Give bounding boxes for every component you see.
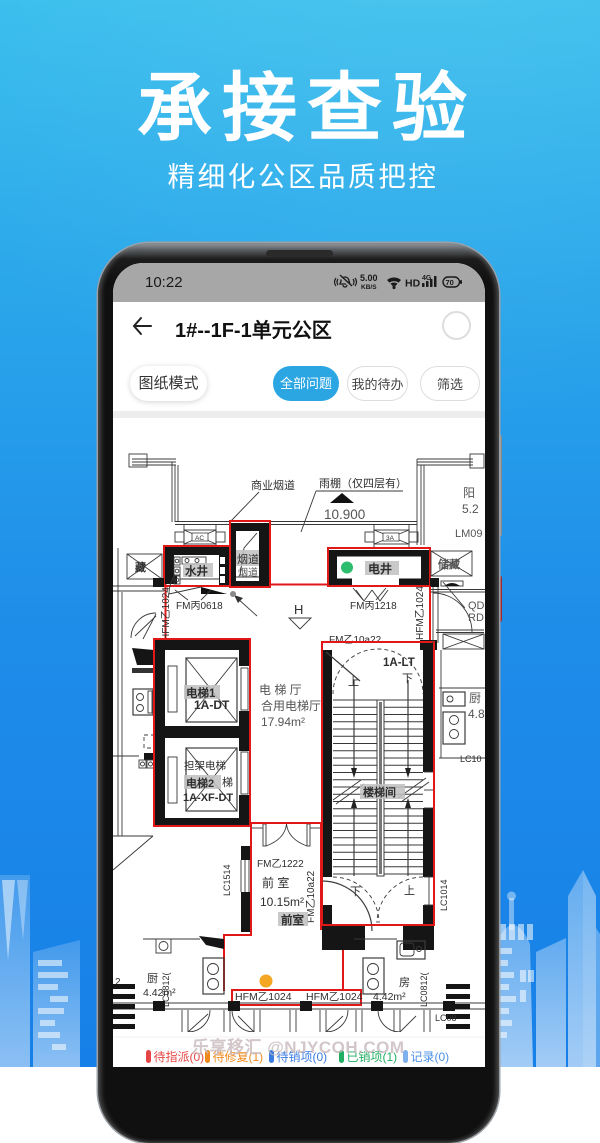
svg-text:70: 70 (446, 278, 454, 287)
svg-text:LC0812(: LC0812( (419, 972, 429, 1007)
svg-text:HFM乙1024: HFM乙1024 (306, 991, 363, 1003)
svg-text:下: 下 (350, 886, 361, 898)
svg-text:KB/S: KB/S (361, 284, 377, 291)
svg-text:前 室: 前 室 (262, 875, 289, 890)
svg-text:FM乙1222: FM乙1222 (257, 858, 304, 870)
svg-text:RD: RD (468, 612, 484, 624)
svg-text:商业烟道: 商业烟道 (251, 478, 295, 492)
svg-text:上: 上 (348, 675, 359, 688)
svg-text:10.15m²: 10.15m² (260, 895, 304, 909)
svg-text:H: H (294, 602, 303, 617)
svg-text:LM09: LM09 (455, 528, 483, 540)
svg-text:藏: 藏 (135, 560, 146, 574)
svg-text:4.42m²: 4.42m² (143, 987, 176, 999)
svg-text:LC1514: LC1514 (222, 864, 232, 896)
svg-text:储藏: 储藏 (438, 557, 460, 571)
svg-text:前室: 前室 (281, 913, 304, 927)
svg-text:LC1014: LC1014 (439, 879, 449, 911)
svg-text:楼梯间: 楼梯间 (363, 785, 396, 799)
svg-text:上: 上 (404, 884, 415, 897)
svg-text:烟道: 烟道 (237, 552, 259, 566)
svg-text:17.94m²: 17.94m² (261, 715, 305, 729)
svg-text:5.2: 5.2 (462, 502, 479, 516)
svg-text:HFM乙1024: HFM乙1024 (160, 587, 172, 641)
svg-text:厨: 厨 (469, 691, 481, 705)
svg-text:QD: QD (468, 600, 485, 612)
svg-text:4.8: 4.8 (468, 707, 485, 721)
svg-text:雨棚（仅四层有）: 雨棚（仅四层有） (319, 476, 407, 490)
svg-text:担架电梯: 担架电梯 (184, 759, 226, 772)
svg-text:LC10: LC10 (460, 754, 482, 764)
svg-text:HD: HD (405, 278, 421, 290)
svg-text:HFM乙1024: HFM乙1024 (414, 586, 426, 640)
svg-text:房: 房 (399, 976, 410, 989)
svg-text:3A: 3A (386, 535, 395, 542)
svg-text:AC: AC (195, 535, 204, 542)
svg-text:1A-XF-DT: 1A-XF-DT (183, 792, 233, 804)
svg-text:厨: 厨 (147, 972, 158, 985)
svg-text:烟道: 烟道 (238, 566, 258, 579)
svg-text:LC08: LC08 (435, 1013, 457, 1023)
svg-text:HFM乙1024: HFM乙1024 (235, 991, 292, 1003)
svg-text:下: 下 (402, 673, 413, 685)
svg-text:1A-DT: 1A-DT (194, 698, 230, 712)
svg-text:电 梯 厅: 电 梯 厅 (259, 683, 302, 697)
svg-text:1A-LT: 1A-LT (383, 657, 415, 669)
svg-text:阳: 阳 (463, 486, 475, 500)
svg-text:水井: 水井 (185, 564, 208, 578)
svg-text:FM丙0618: FM丙0618 (176, 601, 223, 612)
svg-text:电梯2: 电梯2 (186, 776, 214, 790)
svg-text:FM丙1218: FM丙1218 (350, 601, 397, 612)
svg-text:梯: 梯 (222, 776, 233, 789)
svg-text:合用电梯厅: 合用电梯厅 (261, 698, 321, 713)
svg-text:5.00: 5.00 (360, 273, 378, 283)
svg-text:电井: 电井 (368, 561, 392, 576)
svg-text:10.900: 10.900 (324, 507, 365, 522)
svg-text:FM乙10a22: FM乙10a22 (329, 634, 382, 646)
